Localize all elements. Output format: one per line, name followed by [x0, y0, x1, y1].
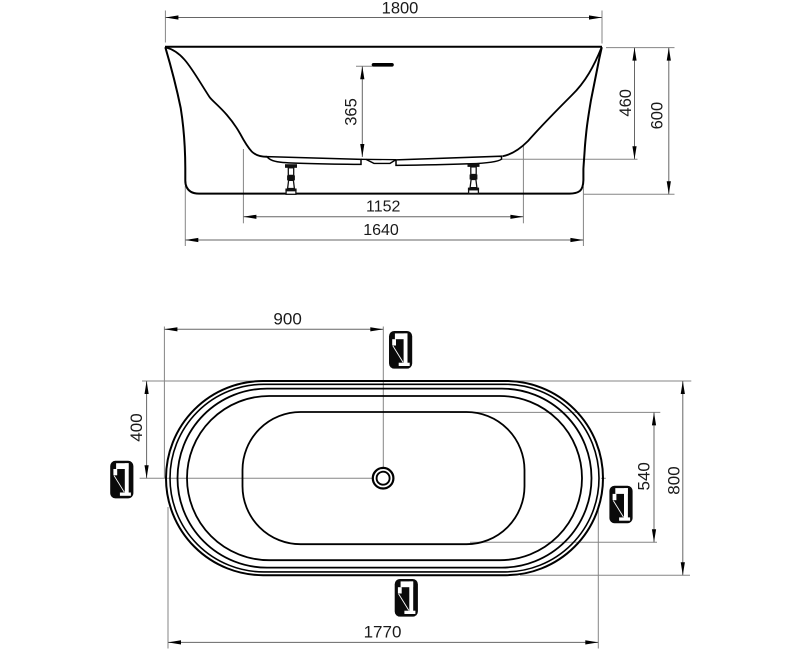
- svg-text:365: 365: [342, 98, 360, 126]
- svg-text:1152: 1152: [366, 199, 401, 216]
- svg-text:460: 460: [617, 89, 635, 117]
- svg-text:400: 400: [127, 413, 146, 441]
- svg-text:800: 800: [665, 466, 684, 494]
- svg-text:540: 540: [634, 462, 653, 490]
- svg-text:1770: 1770: [364, 623, 402, 642]
- svg-text:1800: 1800: [382, 0, 419, 18]
- svg-text:900: 900: [273, 309, 301, 328]
- svg-text:600: 600: [649, 102, 667, 130]
- svg-text:1640: 1640: [363, 222, 399, 239]
